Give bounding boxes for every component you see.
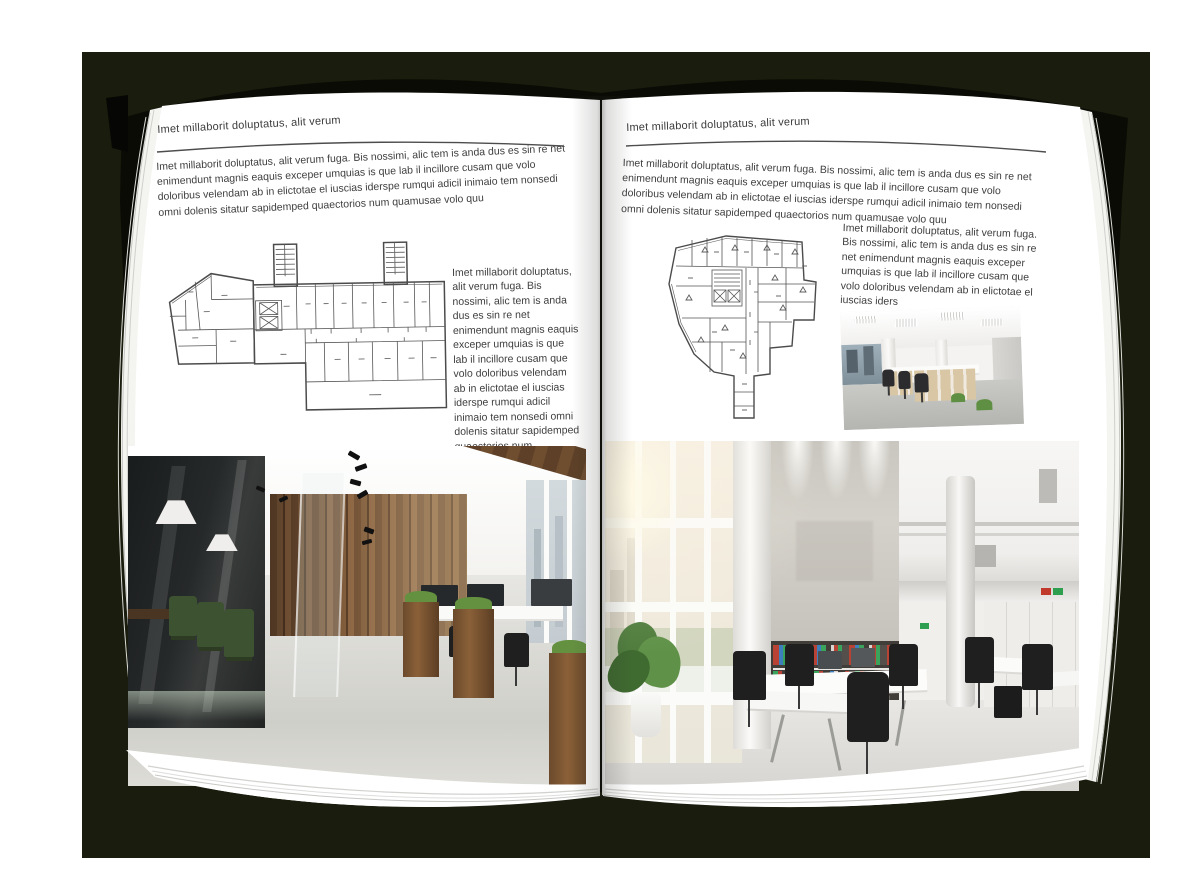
office-chair bbox=[847, 672, 890, 742]
office-chair bbox=[1022, 644, 1053, 690]
green-chair bbox=[169, 596, 196, 637]
mezzanine bbox=[899, 441, 1079, 581]
office-chair bbox=[965, 637, 993, 683]
wood-planter bbox=[403, 602, 440, 677]
left-office-photo bbox=[128, 446, 586, 786]
wood-planter bbox=[549, 653, 586, 786]
office-chair bbox=[882, 369, 895, 386]
office-chair bbox=[914, 373, 929, 392]
railing bbox=[899, 522, 1079, 526]
right-side-column: Imet millaborit doluptatus, alit verum f… bbox=[840, 221, 1043, 315]
safety-sign bbox=[1041, 588, 1051, 595]
ceiling-light bbox=[855, 316, 877, 324]
office-chair bbox=[504, 633, 529, 667]
right-floor-plan bbox=[652, 222, 838, 428]
ceiling-light bbox=[981, 318, 1003, 326]
left-side-column: Imet millaborit doluptatus, alit verum f… bbox=[452, 264, 581, 469]
green-chair bbox=[224, 609, 254, 657]
office-chair bbox=[889, 644, 917, 686]
plant-pot bbox=[631, 692, 661, 737]
right-small-office-photo bbox=[840, 306, 1024, 430]
monitor bbox=[818, 651, 842, 669]
desk-plant bbox=[951, 393, 966, 403]
left-floor-plan bbox=[154, 229, 449, 422]
ceiling-light bbox=[939, 311, 964, 320]
green-chair bbox=[197, 602, 224, 646]
desk-plant bbox=[976, 399, 993, 410]
office-chair bbox=[733, 651, 766, 700]
office-chair bbox=[898, 371, 911, 389]
right-header-rule bbox=[624, 137, 1050, 157]
waste-bin bbox=[994, 686, 1022, 718]
wood-planter bbox=[453, 609, 494, 697]
book-mockup-scene: Imet millaborit doluptatus, alit verum I… bbox=[0, 0, 1200, 891]
ceiling-light bbox=[894, 319, 918, 327]
glass-partition bbox=[294, 473, 347, 697]
monitor bbox=[531, 579, 572, 606]
right-large-office-photo bbox=[605, 441, 1079, 791]
exit-sign bbox=[920, 623, 929, 629]
